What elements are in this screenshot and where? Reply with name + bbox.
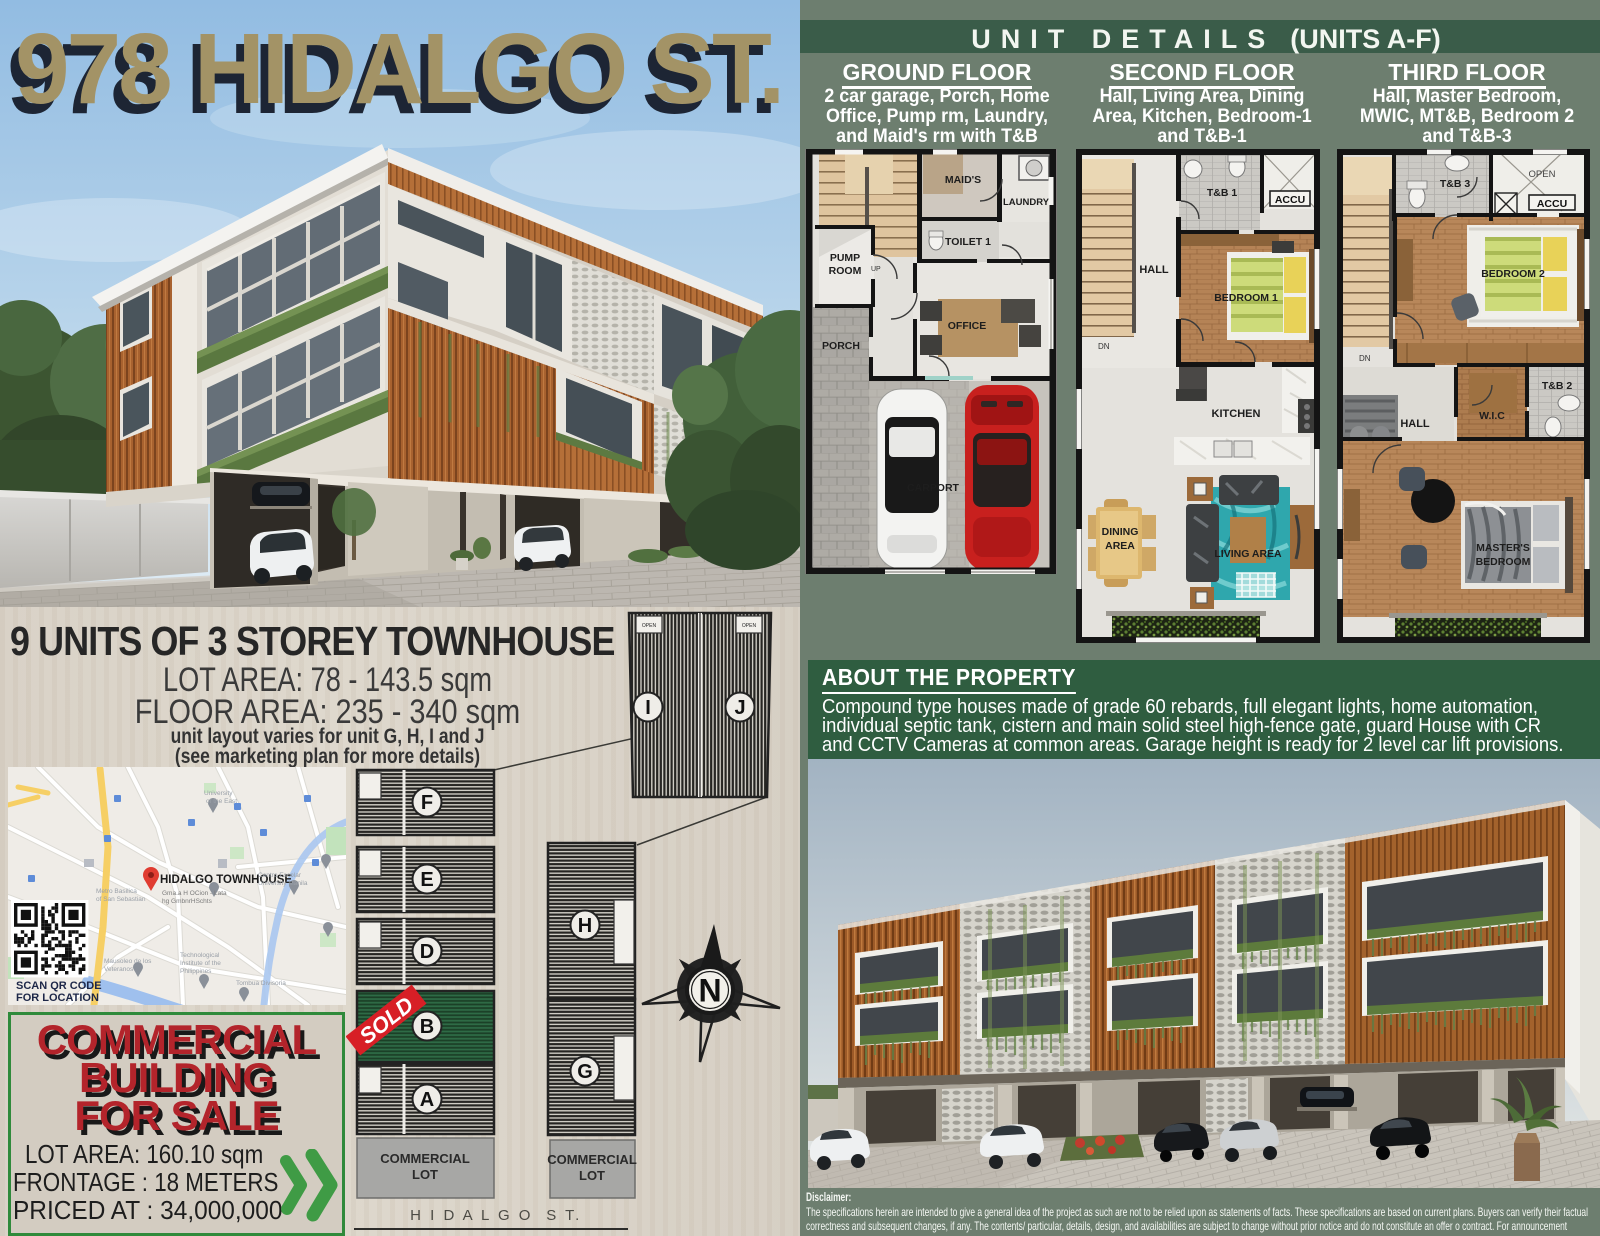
svg-text:G: G: [577, 1061, 593, 1083]
svg-text:University Manila: University Manila: [258, 880, 308, 887]
svg-text:Institute of the: Institute of the: [180, 960, 221, 967]
svg-text:Centro Escolar: Centro Escolar: [258, 872, 302, 879]
svg-text:Mausoleo de los: Mausoleo de los: [104, 958, 152, 965]
svg-text:I: I: [645, 697, 651, 719]
svg-text:AREA: AREA: [1105, 540, 1135, 552]
svg-text:J: J: [734, 697, 745, 719]
svg-text:PORCH: PORCH: [822, 340, 860, 352]
svg-text:OPEN: OPEN: [642, 623, 657, 629]
svg-text:LOT: LOT: [579, 1168, 605, 1183]
svg-text:F: F: [421, 792, 433, 814]
svg-text:E: E: [420, 869, 433, 891]
svg-text:HALL: HALL: [1400, 418, 1430, 430]
svg-text:N: N: [698, 973, 721, 1009]
svg-text:Gma.a H OCion - Lata: Gma.a H OCion - Lata: [162, 890, 227, 897]
svg-text:ROOM: ROOM: [829, 265, 862, 277]
svg-text:T&B 3: T&B 3: [1440, 178, 1470, 190]
svg-text:Technological: Technological: [180, 952, 220, 959]
svg-text:PUMP: PUMP: [830, 252, 860, 264]
svg-text:T&B 2: T&B 2: [1542, 380, 1572, 392]
svg-text:BEDROOM 1: BEDROOM 1: [1214, 292, 1278, 304]
svg-text:OFFICE: OFFICE: [948, 320, 987, 332]
svg-text:ACCU: ACCU: [1275, 194, 1305, 206]
svg-text:A: A: [420, 1089, 434, 1111]
svg-text:hg GmbnrHSchts: hg GmbnrHSchts: [162, 898, 213, 905]
svg-text:OPEN: OPEN: [742, 623, 757, 629]
svg-text:FOR LOCATION: FOR LOCATION: [16, 992, 99, 1004]
svg-text:BEDROOM 2: BEDROOM 2: [1481, 268, 1545, 280]
svg-text:SCAN QR CODE: SCAN QR CODE: [16, 980, 102, 992]
svg-text:MASTER'S: MASTER'S: [1476, 542, 1530, 554]
svg-text:COMMERCIAL: COMMERCIAL: [547, 1152, 637, 1167]
svg-text:H: H: [578, 915, 592, 937]
svg-text:University: University: [204, 790, 233, 797]
svg-text:UP: UP: [871, 266, 881, 273]
svg-text:of the East: of the East: [206, 798, 237, 805]
svg-text:D: D: [420, 941, 434, 963]
svg-text:Tombua Divisoria: Tombua Divisoria: [236, 980, 286, 987]
svg-text:LOT: LOT: [412, 1167, 438, 1182]
svg-text:Philippines: Philippines: [180, 968, 212, 975]
svg-text:LAUNDRY: LAUNDRY: [1003, 197, 1050, 208]
svg-text:T&B 1: T&B 1: [1207, 187, 1237, 199]
svg-text:OPEN: OPEN: [1529, 169, 1556, 180]
svg-text:TOILET 1: TOILET 1: [945, 236, 991, 248]
svg-text:Veteranos: Veteranos: [104, 966, 134, 973]
svg-text:LIVING AREA: LIVING AREA: [1214, 548, 1282, 560]
svg-text:KITCHEN: KITCHEN: [1212, 408, 1261, 420]
svg-text:B: B: [420, 1016, 434, 1038]
svg-text:DN: DN: [1098, 342, 1110, 351]
svg-text:of San Sebastian: of San Sebastian: [96, 896, 146, 903]
svg-text:H I D A L G O S T.: H I D A L G O S T.: [410, 1207, 582, 1224]
svg-text:COMMERCIAL: COMMERCIAL: [380, 1151, 470, 1166]
svg-text:BEDROOM: BEDROOM: [1476, 556, 1531, 568]
svg-text:HALL: HALL: [1139, 264, 1169, 276]
svg-text:W.I.C: W.I.C: [1479, 410, 1505, 422]
svg-text:DN: DN: [1359, 354, 1371, 363]
svg-text:MAID'S: MAID'S: [945, 174, 981, 186]
svg-text:CARPORT: CARPORT: [907, 482, 960, 494]
svg-text:Metro Basilica: Metro Basilica: [96, 888, 137, 895]
svg-text:DINING: DINING: [1102, 526, 1139, 538]
svg-text:ACCU: ACCU: [1537, 198, 1567, 210]
